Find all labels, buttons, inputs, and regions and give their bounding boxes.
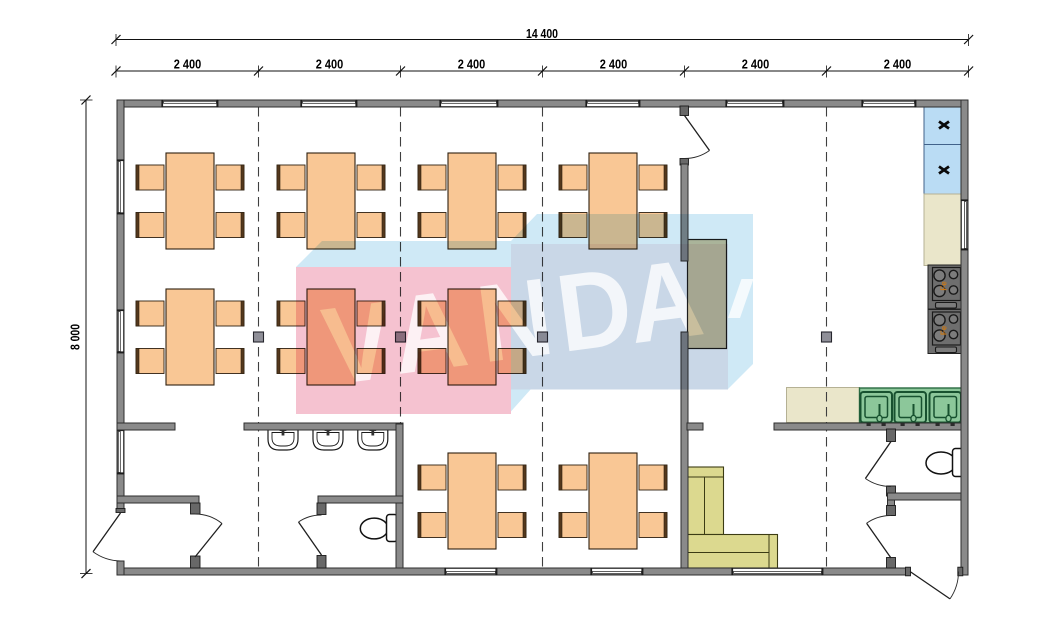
svg-text:2 400: 2 400 <box>600 57 628 72</box>
svg-text:2 400: 2 400 <box>458 57 486 72</box>
svg-text:2 400: 2 400 <box>884 57 912 72</box>
svg-text:14 400: 14 400 <box>526 26 558 41</box>
svg-text:2 400: 2 400 <box>174 57 202 72</box>
svg-text:2 400: 2 400 <box>316 57 344 72</box>
svg-text:Fe: Fe <box>940 325 949 335</box>
svg-text:2 400: 2 400 <box>742 57 770 72</box>
svg-text:Fe: Fe <box>940 281 949 291</box>
svg-text:8 000: 8 000 <box>68 324 83 350</box>
